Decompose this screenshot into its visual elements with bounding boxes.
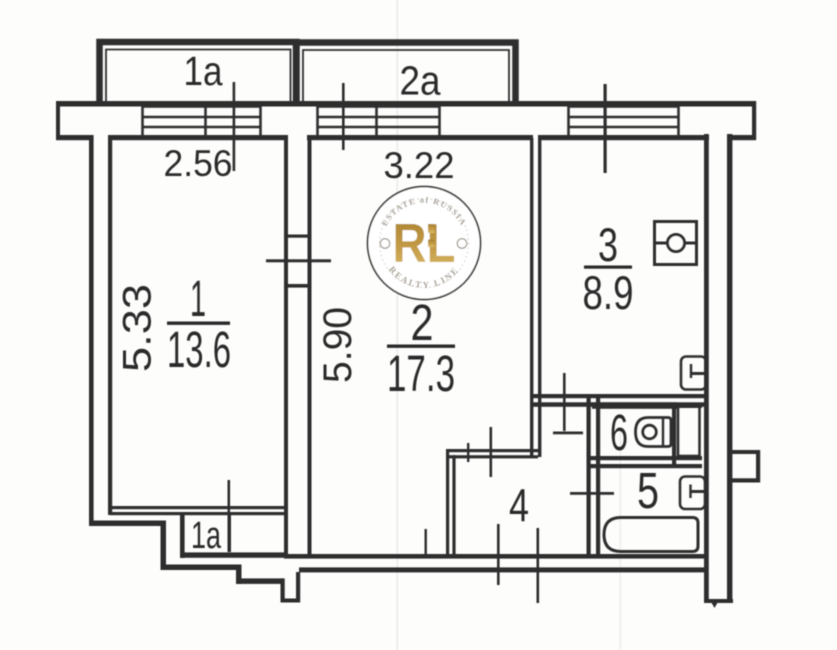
svg-text:13.6: 13.6 [167, 321, 231, 378]
svg-text:6: 6 [610, 404, 628, 461]
svg-text:3.22: 3.22 [384, 145, 455, 186]
svg-text:5.90: 5.90 [316, 307, 360, 383]
svg-text:2: 2 [411, 294, 434, 351]
svg-text:5.33: 5.33 [116, 284, 160, 372]
svg-text:1: 1 [190, 270, 206, 327]
svg-text:4: 4 [509, 479, 529, 531]
svg-text:5: 5 [637, 462, 659, 519]
svg-text:8.9: 8.9 [583, 266, 634, 319]
svg-text:1a: 1a [184, 48, 223, 94]
svg-text:2a: 2a [400, 58, 441, 104]
svg-text:RL: RL [393, 212, 456, 274]
svg-text:2.56: 2.56 [164, 143, 233, 184]
svg-text:1a: 1a [191, 515, 222, 557]
svg-text:17.3: 17.3 [387, 345, 455, 402]
svg-text:3: 3 [598, 218, 618, 271]
